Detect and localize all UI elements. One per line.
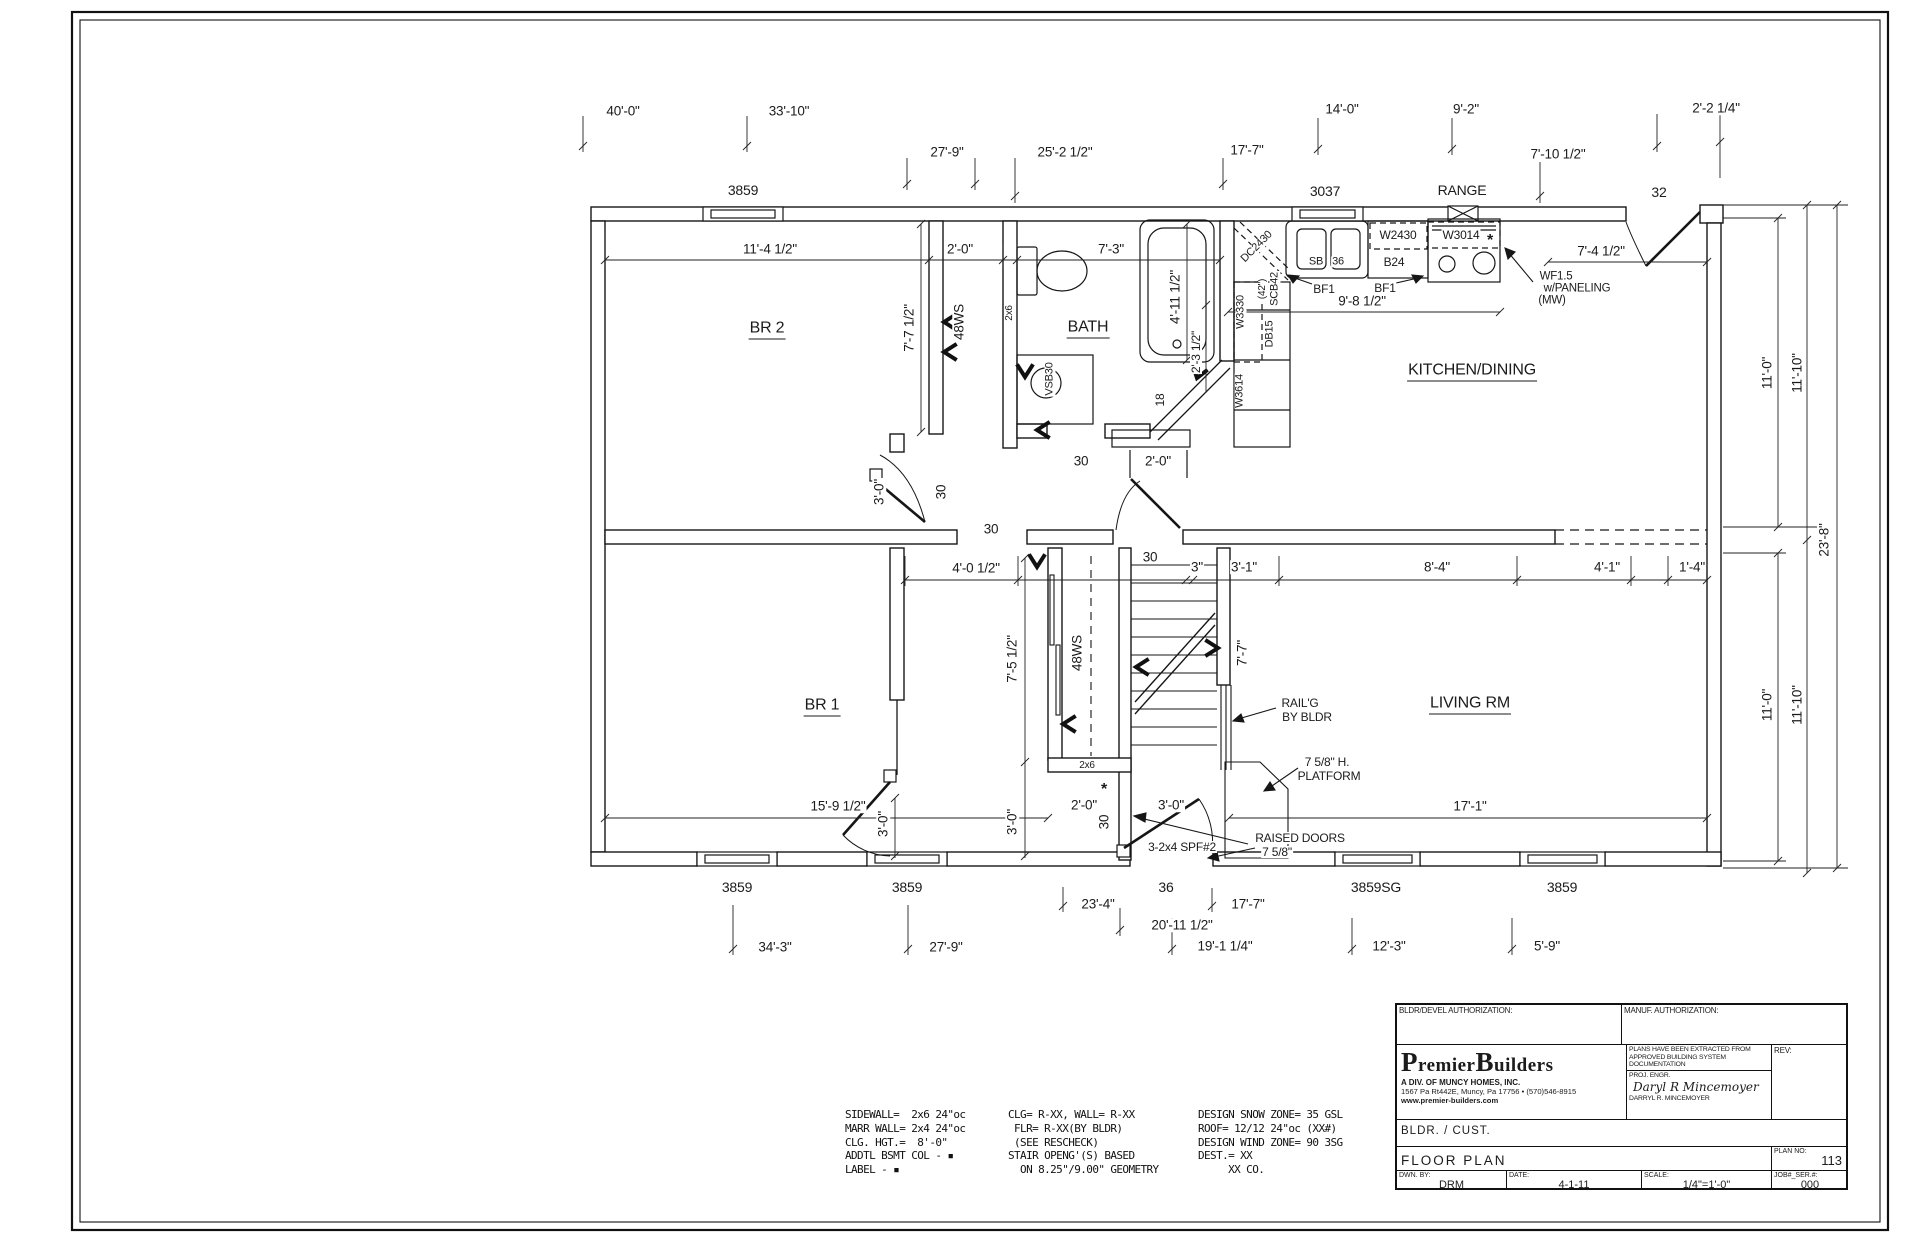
bldr-cust-text: BLDR. / CUST. (1397, 1120, 1848, 1137)
note-label: (MW) (1537, 295, 1566, 307)
cab-label: W2430 (1378, 229, 1417, 241)
dim-label: 48WS (952, 303, 966, 341)
spec-line: STAIR OPENG'(S) BASED (1008, 1149, 1159, 1163)
dim-label: 2x6 (1078, 761, 1096, 771)
spec-line: FLR= R-XX(BY BLDR) (1008, 1122, 1159, 1136)
cab-label: 36 (1331, 257, 1345, 268)
dim-label: 30 (1097, 814, 1111, 831)
dim-label: 17'-7" (1229, 143, 1264, 157)
spec-line: ON 8.25"/9.00" GEOMETRY (1008, 1163, 1159, 1177)
cab-label: (42") (1258, 278, 1268, 300)
win-label: 36 (1157, 880, 1174, 894)
spec-line: ADDTL BSMT COL - ▪ (845, 1149, 965, 1163)
dim-label: 2'-0" (946, 242, 974, 256)
spec-line: CLG. HGT.= 8'-0" (845, 1136, 965, 1150)
brand-address: 1567 Pa Rt442E, Muncy, Pa 17756 • (570)5… (1397, 1087, 1626, 1096)
sheet-title-cell: FLOOR PLAN (1397, 1147, 1772, 1171)
spec-column-wall: SIDEWALL= 2x6 24"ocMARR WALL= 2x4 24"ocC… (845, 1108, 965, 1177)
dim-label: 2'-0" (1144, 454, 1172, 468)
date-value: 4-1-11 (1507, 1179, 1641, 1190)
dim-label: 4'-0 1/2" (951, 561, 1001, 575)
dim-label: 27'-9" (928, 940, 963, 954)
room-label: LIVING RM (1429, 696, 1511, 715)
job-value: 000 (1772, 1179, 1848, 1190)
spec-line: ROOF= 12/12 24"oc (XX#) (1198, 1122, 1343, 1136)
spec-line: MARR WALL= 2x4 24"oc (845, 1122, 965, 1136)
cab-label: W3014 (1441, 229, 1480, 241)
dim-label: 9'-8 1/2" (1337, 294, 1387, 308)
note-label: WF1.5 (1539, 271, 1574, 283)
win-label: 3859SG (1350, 880, 1402, 894)
engineer-cell: PLANS HAVE BEEN EXTRACTED FROM APPROVED … (1627, 1045, 1772, 1120)
dim-label: 15'-9 1/2" (810, 799, 867, 813)
dim-label: BY BLDR (1281, 711, 1333, 723)
proj-engr-label: PROJ. ENGR. (1627, 1071, 1771, 1081)
dim-label: RAIL'G (1280, 697, 1319, 709)
dim-label: 34'-3" (757, 940, 792, 954)
dim-label: 33'-10" (768, 104, 811, 118)
dim-label: 7'-7 1/2" (902, 303, 916, 353)
dim-label: 8'-4" (1423, 560, 1451, 574)
dim-label: 3'-0" (872, 478, 886, 506)
win-label: 3859 (891, 880, 923, 894)
dim-label: 3'-0" (876, 810, 890, 838)
spec-line: DESIGN WIND ZONE= 90 3SG (1198, 1136, 1343, 1150)
spec-line: DESIGN SNOW ZONE= 35 GSL (1198, 1108, 1343, 1122)
dim-label: 7'-5 1/2" (1005, 634, 1019, 684)
floor-plan-sheet: 40'-0"33'-10"14'-0"9'-2"2'-2 1/4"27'-9"2… (0, 0, 1920, 1242)
engineer-signature: Daryl R Mincemoyer (1627, 1080, 1771, 1094)
spec-line: LABEL - ▪ (845, 1163, 965, 1177)
dim-label: 30 (1073, 454, 1090, 468)
scale-value: 1/4"=1'-0" (1642, 1179, 1771, 1190)
dim-label: 2'-3 1/2" (1190, 330, 1202, 374)
dim-label: 30 (983, 522, 1000, 536)
scale-label: SCALE: (1644, 1172, 1669, 1179)
rev-cell: REV: (1772, 1045, 1848, 1120)
dim-label: 14'-0" (1324, 102, 1359, 116)
dim-label: 3" (1190, 560, 1204, 574)
spec-line: SIDEWALL= 2x6 24"oc (845, 1108, 965, 1122)
dim-label: 11'-0" (1760, 688, 1774, 722)
dim-label: 2x6 (1005, 304, 1015, 322)
job-label: JOB#_SER.#: (1774, 1172, 1818, 1179)
dim-label: 3'-0" (1005, 808, 1019, 836)
dim-label: 48WS (1070, 634, 1084, 672)
win-label: 3859 (721, 880, 753, 894)
brand-builders: Builders (1476, 1047, 1554, 1078)
room-label: BATH (1067, 320, 1110, 339)
dim-label: 3-2x4 SPF#2 (1147, 841, 1217, 853)
dim-label: BF1 (1373, 282, 1396, 294)
manuf-authorization-cell: MANUF. AUTHORIZATION: (1622, 1005, 1848, 1045)
dim-label: 12'-3" (1371, 939, 1406, 953)
spec-line: CLG= R-XX, WALL= R-XX (1008, 1108, 1159, 1122)
dim-label: 23'-4" (1080, 897, 1115, 911)
dim-label: 11'-10" (1790, 684, 1804, 726)
cab-label: B24 (1383, 256, 1406, 268)
dim-label: 18 (1154, 393, 1166, 408)
cab-label: DB15 (1265, 320, 1276, 349)
plan-no-label: PLAN NO: (1774, 1148, 1807, 1155)
room-label: BR 1 (804, 698, 841, 717)
dim-label: 23'-8" (1817, 522, 1831, 557)
bldr-authorization-cell: BLDR/DEVEL AUTHORIZATION: (1397, 1005, 1622, 1045)
spec-column-zones: DESIGN SNOW ZONE= 35 GSLROOF= 12/12 24"o… (1198, 1108, 1343, 1177)
spec-line: DEST.= XX (1198, 1149, 1343, 1163)
dim-label: 9'-2" (1452, 102, 1480, 116)
room-label: KITCHEN/DINING (1407, 363, 1537, 382)
brand-cell: PremierBuilders A DIV. OF MUNCY HOMES, I… (1397, 1045, 1627, 1120)
cab-label: VSB30 (1045, 361, 1056, 396)
premier-builders-logo: PremierBuilders (1397, 1045, 1626, 1078)
dim-label: 25'-2 1/2" (1037, 145, 1094, 159)
dwn-by-label: DWN. BY: (1399, 1172, 1431, 1179)
dim-label: 3'-0" (1157, 798, 1185, 812)
spec-column-insulation: CLG= R-XX, WALL= R-XX FLR= R-XX(BY BLDR)… (1008, 1108, 1159, 1177)
dim-label: 17'-7" (1230, 897, 1265, 911)
plan-no-cell: PLAN NO: 113 (1772, 1147, 1848, 1171)
dim-label: PLATFORM (1297, 770, 1362, 782)
dim-label: 11'-4 1/2" (742, 242, 798, 256)
brand-premier: Premier (1401, 1047, 1476, 1078)
dim-label: 40'-0" (605, 104, 640, 118)
star-label: * (1486, 233, 1494, 249)
dim-label: 7'-3" (1097, 242, 1125, 256)
date-cell: DATE: 4-1-11 (1507, 1171, 1642, 1190)
brand-website: www.premier-builders.com (1397, 1096, 1626, 1105)
win-label: RANGE (1437, 183, 1488, 197)
brand-division: A DIV. OF MUNCY HOMES, INC. (1397, 1078, 1626, 1087)
win-label: 32 (1650, 185, 1667, 199)
dim-label: 30 (1142, 550, 1159, 564)
dim-label: 4'-1" (1593, 560, 1621, 574)
scale-cell: SCALE: 1/4"=1'-0" (1642, 1171, 1772, 1190)
cab-label: DC2430 (1239, 229, 1276, 266)
plan-no-value: 113 (1772, 1153, 1848, 1168)
room-label: BR 2 (749, 321, 786, 340)
cab-label: SB (1308, 257, 1324, 268)
dwn-by-value: DRM (1397, 1179, 1506, 1190)
dim-label: 2'-0" (1070, 798, 1098, 812)
cab-label: W3614 (1235, 373, 1246, 409)
cab-label: SCB42 (1270, 271, 1281, 307)
dim-label: 1'-4" (1678, 560, 1706, 574)
bldr-cust-cell: BLDR. / CUST. (1397, 1120, 1848, 1147)
job-cell: JOB#_SER.#: 000 (1772, 1171, 1848, 1190)
dim-label: 11'-10" (1790, 352, 1804, 394)
dim-label: 7 5/8" H. (1304, 756, 1350, 768)
dim-label: 7'-4 1/2" (1576, 244, 1626, 258)
spec-line: (SEE RESCHECK) (1008, 1136, 1159, 1150)
date-label: DATE: (1509, 1172, 1529, 1179)
dim-label: 5'-9" (1533, 939, 1561, 953)
cab-label: W3330 (1236, 294, 1247, 330)
title-block: BLDR/DEVEL AUTHORIZATION: MANUF. AUTHORI… (1395, 1003, 1848, 1190)
sheet-title: FLOOR PLAN (1397, 1147, 1771, 1168)
win-label: 3859 (1546, 880, 1578, 894)
dim-label: 7'-7" (1235, 639, 1249, 667)
dim-label: BF1 (1312, 283, 1335, 295)
dim-label: 20'-11 1/2" (1150, 918, 1213, 932)
note-label: w/PANELING (1543, 283, 1612, 295)
win-label: 3859 (727, 183, 759, 197)
dim-label: 2'-2 1/4" (1691, 101, 1741, 115)
dim-label: RAISED DOORS (1254, 832, 1346, 844)
engineer-name: DARRYL R. MINCEMOYER (1627, 1094, 1771, 1104)
spec-line: XX CO. (1198, 1163, 1343, 1177)
dim-label: 17'-1" (1452, 799, 1487, 813)
win-label: 3037 (1309, 184, 1341, 198)
dim-label: 4'-11 1/2" (1168, 269, 1182, 325)
star-label: * (1100, 782, 1108, 798)
dim-label: 19'-1 1/4" (1197, 939, 1254, 953)
dim-label: 30 (934, 484, 948, 501)
dim-label: 11'-0" (1760, 356, 1774, 390)
dwn-by-cell: DWN. BY: DRM (1397, 1171, 1507, 1190)
plans-note: PLANS HAVE BEEN EXTRACTED FROM APPROVED … (1627, 1045, 1771, 1071)
dim-label: 27'-9" (929, 145, 964, 159)
dim-label: 3'-1" (1230, 560, 1258, 574)
dim-label: 7 5/8" (1261, 846, 1293, 858)
dim-label: 7'-10 1/2" (1530, 147, 1587, 161)
